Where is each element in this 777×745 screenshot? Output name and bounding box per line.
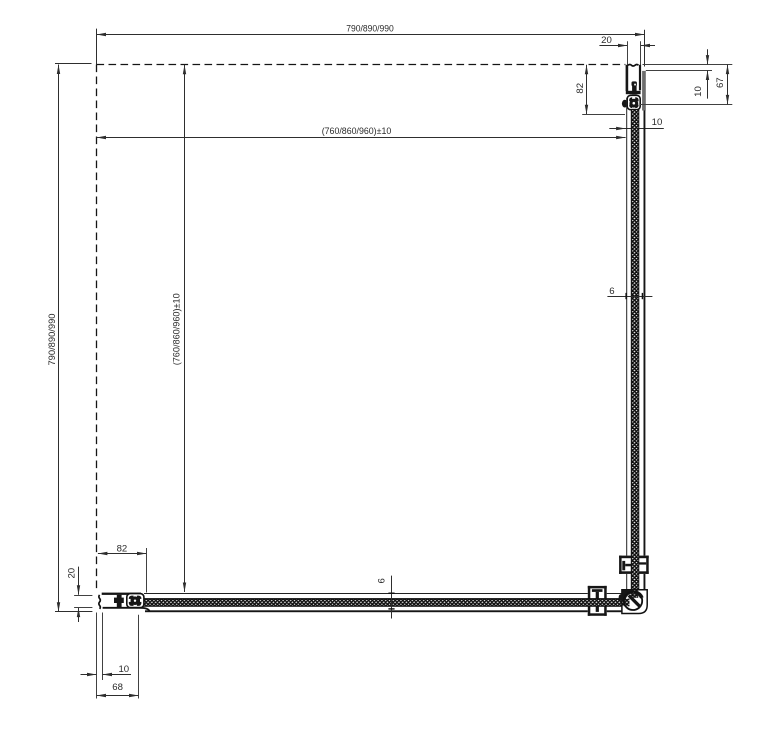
svg-text:10: 10 bbox=[118, 664, 129, 675]
svg-text:6: 6 bbox=[609, 286, 614, 297]
svg-text:10: 10 bbox=[652, 117, 663, 128]
svg-text:6: 6 bbox=[376, 578, 387, 583]
svg-text:20: 20 bbox=[601, 35, 612, 46]
svg-text:10: 10 bbox=[693, 86, 704, 97]
svg-text:(760/860/960)±10: (760/860/960)±10 bbox=[322, 126, 392, 137]
svg-text:68: 68 bbox=[112, 682, 123, 693]
svg-text:790/890/990: 790/890/990 bbox=[47, 314, 58, 366]
svg-text:82: 82 bbox=[575, 83, 586, 94]
svg-text:67: 67 bbox=[715, 77, 726, 88]
svg-text:(760/860/960)±10: (760/860/960)±10 bbox=[172, 293, 183, 365]
svg-text:82: 82 bbox=[117, 544, 128, 555]
svg-text:20: 20 bbox=[67, 568, 78, 579]
svg-text:790/890/990: 790/890/990 bbox=[346, 24, 394, 35]
